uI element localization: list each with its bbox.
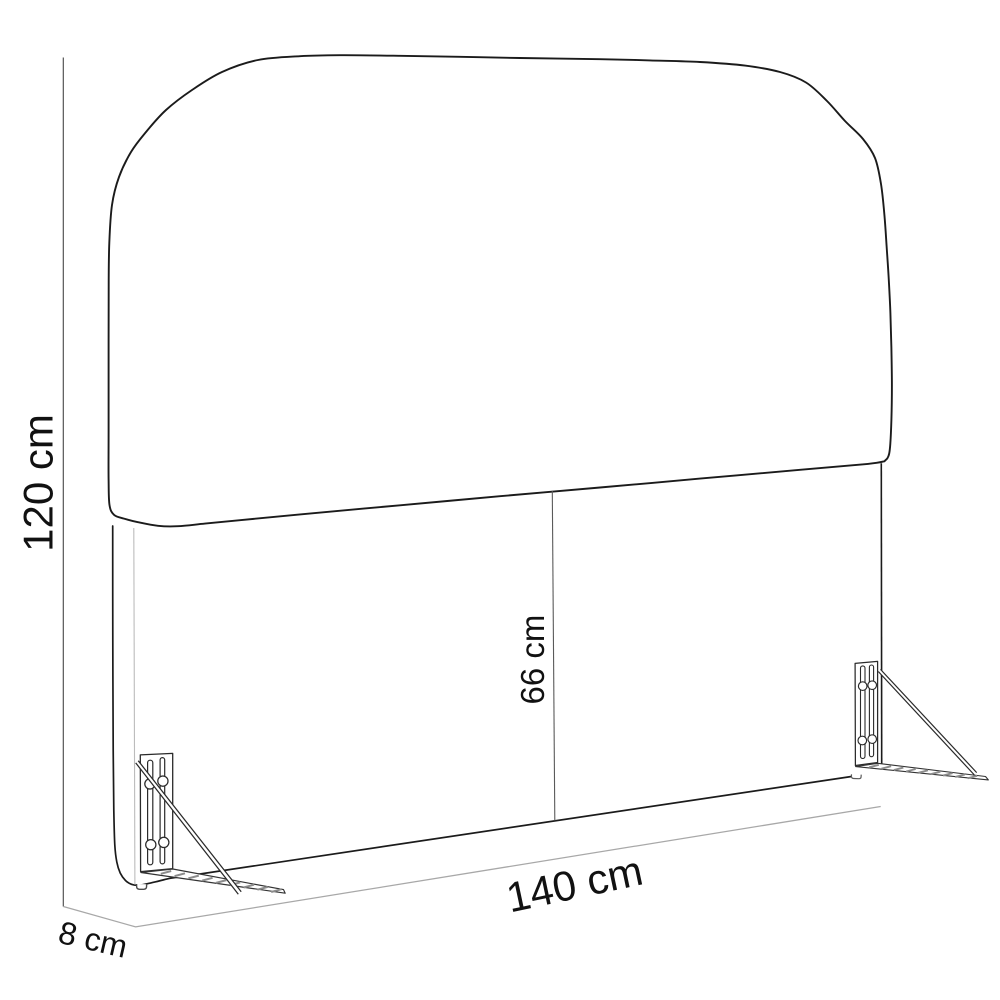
svg-text:140 cm: 140 cm bbox=[502, 847, 646, 922]
svg-text:66 cm: 66 cm bbox=[514, 615, 551, 705]
svg-text:120 cm: 120 cm bbox=[15, 414, 62, 552]
